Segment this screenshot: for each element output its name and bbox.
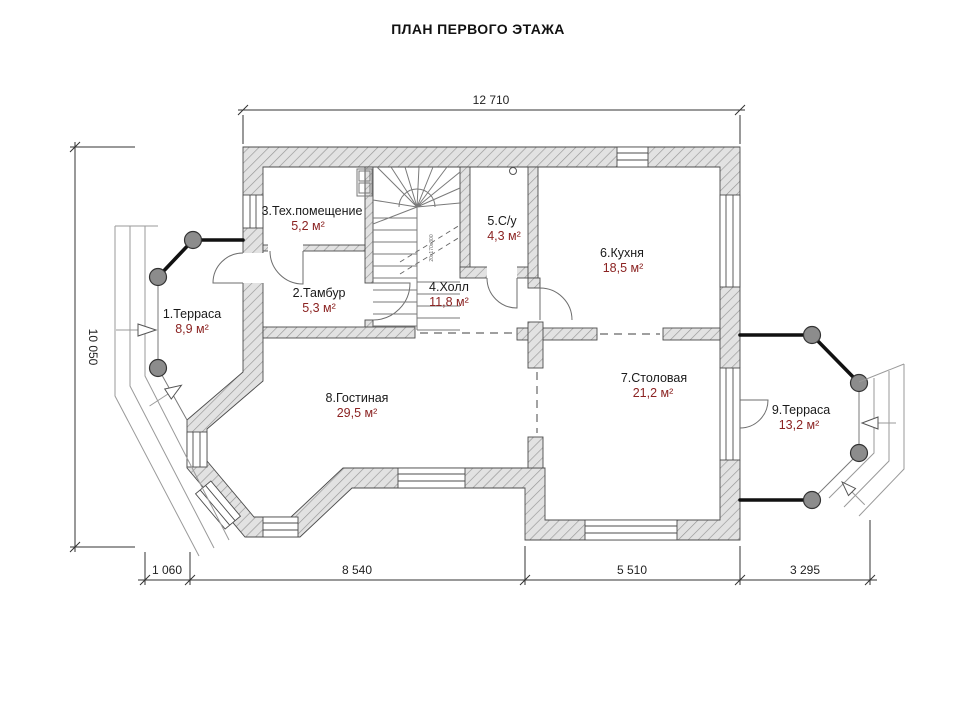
room-area: 11,8 м²: [429, 295, 469, 309]
room-label-bathroom: 5.С/у 4,3 м²: [487, 214, 521, 243]
window-kitchen-right: [720, 195, 740, 287]
door-terrace9-entry: [740, 400, 768, 428]
room-area: 21,2 м²: [633, 386, 674, 400]
dimension-left: 10 050: [70, 142, 135, 552]
window-living-bottom: [398, 468, 465, 488]
room-label-terrace9: 9.Терраса 13,2 м²: [772, 403, 830, 432]
dim-bottom-1: 1 060: [152, 563, 182, 577]
terrace-post: [851, 375, 868, 392]
wall-openings: [242, 244, 741, 460]
room-name: 7.Столовая: [621, 371, 687, 385]
room-area: 8,9 м²: [175, 322, 209, 336]
room-name: 3.Тех.помещение: [262, 204, 363, 218]
dim-left-value: 10 050: [86, 329, 100, 366]
room-name: 9.Терраса: [772, 403, 830, 417]
terrace-right: [740, 327, 904, 517]
room-area: 29,5 м²: [337, 406, 378, 420]
steps-arrow-icon: [862, 417, 878, 429]
door-kitchen: [540, 288, 572, 320]
terrace-post: [150, 360, 167, 377]
room-label-dining: 7.Столовая 21,2 м²: [621, 371, 687, 400]
window-kitchen-top: [617, 147, 648, 167]
window-bay-bottom: [263, 517, 298, 537]
steps-arrow-icon: [165, 380, 185, 399]
room-label-hall: 4.Холл 11,8 м²: [429, 280, 469, 309]
window-terrace-door-band: [720, 368, 740, 460]
steps-arrow-icon: [138, 324, 156, 336]
dim-bottom-3: 5 510: [617, 563, 647, 577]
window-dining-bottom: [585, 520, 677, 540]
room-area: 4,3 м²: [487, 229, 521, 243]
room-name: 4.Холл: [429, 280, 469, 294]
room-label-tech: 3.Тех.помещение 5,2 м²: [262, 204, 363, 233]
room-label-terrace1: 1.Терраса 8,9 м²: [163, 307, 221, 336]
terrace-left-railing: [158, 240, 243, 277]
room-name: 8.Гостиная: [326, 391, 389, 405]
terrace-post: [150, 269, 167, 286]
stairs-note: 20x170x300: [429, 234, 435, 261]
window-tech-left: [243, 195, 263, 228]
room-area: 13,2 м²: [779, 418, 820, 432]
terrace-post: [804, 492, 821, 509]
vent-shaft: [357, 169, 372, 196]
room-name: 1.Терраса: [163, 307, 221, 321]
terrace-post: [185, 232, 202, 249]
room-name: 6.Кухня: [600, 246, 644, 260]
terrace-left-steps: [115, 226, 229, 556]
room-label-tambour: 2.Тамбур 5,3 м²: [293, 286, 346, 315]
door-tech-room: [270, 251, 303, 284]
door-bathroom: [487, 278, 517, 308]
terrace-post: [851, 445, 868, 462]
room-area: 5,3 м²: [302, 301, 336, 315]
room-area: 5,2 м²: [291, 219, 325, 233]
window-bay-left: [187, 432, 207, 467]
room-label-living: 8.Гостиная 29,5 м²: [326, 391, 389, 420]
room-name: 2.Тамбур: [293, 286, 346, 300]
vent-hole: [510, 168, 517, 175]
dim-top-value: 12 710: [473, 93, 510, 107]
terrace-right-railing-top: [740, 335, 859, 383]
dimension-top: 12 710: [238, 93, 745, 144]
floor-plan-drawing: ПЛАН ПЕРВОГО ЭТАЖА: [0, 0, 956, 717]
dim-bottom-4: 3 295: [790, 563, 820, 577]
room-area: 18,5 м²: [603, 261, 644, 275]
room-label-kitchen: 6.Кухня 18,5 м²: [600, 246, 644, 275]
dim-bottom-2: 8 540: [342, 563, 372, 577]
plan-title: ПЛАН ПЕРВОГО ЭТАЖА: [391, 21, 565, 37]
terrace-post: [804, 327, 821, 344]
door-terrace1-entry: [213, 253, 243, 283]
floor-plan-page: ПЛАН ПЕРВОГО ЭТАЖА: [0, 0, 956, 717]
room-name: 5.С/у: [487, 214, 517, 228]
